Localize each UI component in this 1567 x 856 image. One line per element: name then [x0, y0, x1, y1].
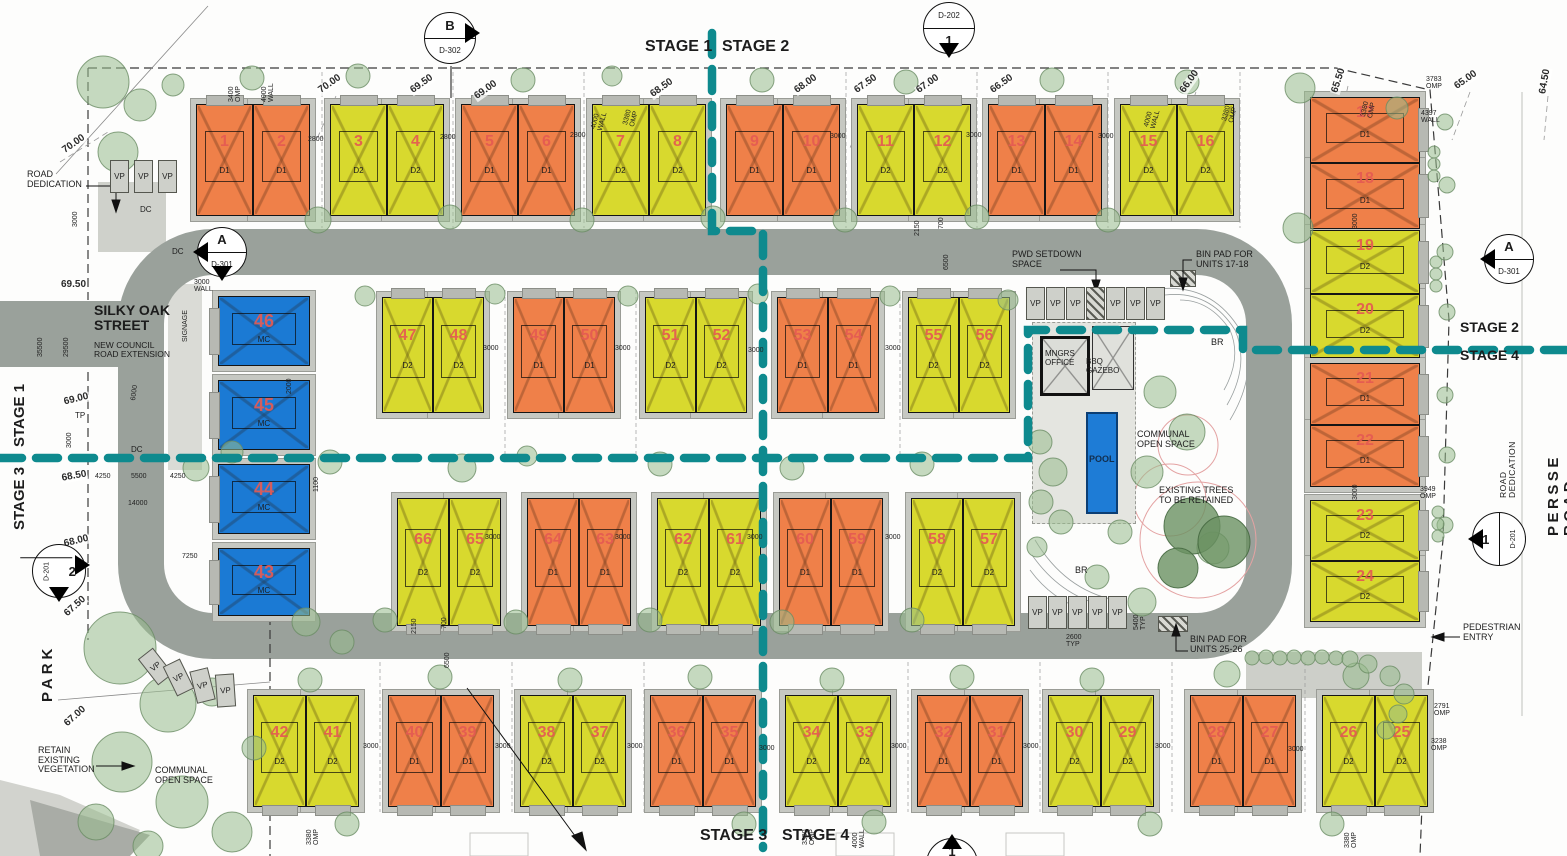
unit-3: 3D2 — [330, 104, 387, 216]
unit-type: D1 — [989, 166, 1044, 175]
unit-58: 58D2 — [911, 498, 963, 626]
stage3-west: STAGE 3 — [12, 467, 28, 530]
unit-30: 30D2 — [1048, 695, 1101, 807]
unit-number: 1 — [197, 133, 252, 151]
stage1-top: STAGE 1 — [645, 38, 712, 55]
unit-number: 8 — [650, 133, 705, 151]
dimensions-25: 4250 — [95, 473, 111, 480]
unit-type: MC — [219, 419, 309, 428]
unit-26: 26D2 — [1322, 695, 1375, 807]
unit-type: D1 — [565, 361, 614, 370]
marker-text: D-201 — [1486, 526, 1538, 552]
stage3-bottom: STAGE 3 — [700, 827, 767, 844]
unit-number: 42 — [254, 724, 305, 742]
unit-19: 19D2 — [1310, 230, 1420, 294]
unit-number: 15 — [1121, 133, 1176, 151]
dimensions-16: 3000 — [1352, 484, 1359, 500]
unit-29: 29D2 — [1101, 695, 1154, 807]
dimensions-15: 3000 — [1352, 213, 1359, 229]
marker-triangle — [49, 587, 69, 612]
unit-type: D1 — [704, 757, 755, 766]
unit-type: D2 — [1178, 166, 1233, 175]
unit-type: D1 — [514, 361, 563, 370]
unit-type: D1 — [1311, 394, 1419, 403]
unit-44: 44MC — [218, 464, 310, 534]
dimensions-34: 3000 — [483, 345, 499, 352]
unit-number: 56 — [960, 327, 1009, 345]
marker-triangle — [1458, 529, 1483, 549]
unit-type: D1 — [580, 568, 630, 577]
pedestrian-entry: PEDESTRIAN ENTRY — [1463, 623, 1521, 642]
unit-12: 12D2 — [914, 104, 971, 216]
stage1-west: STAGE 1 — [12, 384, 28, 447]
dimensions-24: 2000 — [286, 378, 293, 394]
vp-label: VP — [1050, 299, 1061, 308]
dimensions-4: 2800 — [570, 132, 586, 139]
unit-type: D1 — [727, 166, 782, 175]
unit-8: 8D2 — [649, 104, 706, 216]
dimensions-28: 14000 — [128, 500, 147, 507]
unit-number: 13 — [989, 133, 1044, 151]
unit-53: 53D1 — [777, 297, 828, 413]
section-marker-b-d302: BD-302 — [424, 12, 476, 64]
dimensions-19: 35500 — [37, 338, 44, 357]
dimensions-3: 2800 — [440, 134, 456, 141]
unit-39: 39D1 — [441, 695, 494, 807]
unit-46: 46MC — [218, 296, 310, 366]
dimensions-37: 3000 — [885, 345, 901, 352]
dimensions-45: 5400 TYP — [1133, 614, 1147, 630]
unit-type: D2 — [331, 166, 386, 175]
unit-54: 54D1 — [828, 297, 879, 413]
unit-type: D2 — [1323, 757, 1374, 766]
unit-type: D1 — [254, 166, 309, 175]
vp-space: VP — [1048, 596, 1067, 629]
vp-space: VP — [1026, 287, 1045, 320]
marker-triangle — [942, 824, 962, 849]
vp-label: VP — [114, 172, 125, 181]
unit-number: 24 — [1311, 568, 1419, 586]
unit-type: D1 — [442, 757, 493, 766]
vp-label: VP — [172, 671, 186, 684]
vp-label: VP — [1112, 608, 1123, 617]
vp-space: VP — [1108, 596, 1127, 629]
unit-59: 59D1 — [831, 498, 883, 626]
dimensions-46: 2600 TYP — [1066, 634, 1082, 648]
unit-type: D2 — [839, 757, 890, 766]
unit-type: D1 — [780, 568, 830, 577]
unit-10: 10D1 — [783, 104, 840, 216]
unit-type: D2 — [960, 361, 1009, 370]
unit-21: 21D1 — [1310, 363, 1420, 425]
unit-number: 55 — [909, 327, 958, 345]
unit-type: D2 — [1376, 757, 1427, 766]
unit-type: D2 — [915, 166, 970, 175]
unit-type: D2 — [450, 568, 500, 577]
unit-type: D1 — [784, 166, 839, 175]
pwd-parking-space — [1086, 287, 1105, 320]
unit-18: 18D1 — [1310, 163, 1420, 229]
dimensions-5: 3000 — [830, 133, 846, 140]
unit-type: D2 — [697, 361, 746, 370]
unit-type: D2 — [646, 361, 695, 370]
unit-49: 49D1 — [513, 297, 564, 413]
unit-65: 65D2 — [449, 498, 501, 626]
mngrs-office: MNGRS OFFICE — [1045, 350, 1075, 367]
vp-label: VP — [1072, 608, 1083, 617]
dimensions-17: 3949 OMP — [1420, 486, 1436, 500]
unit-type: D1 — [519, 166, 574, 175]
unit-51: 51D2 — [645, 297, 696, 413]
bin-pad-17-18-pad — [1170, 270, 1196, 287]
dimensions-35: 3000 — [615, 345, 631, 352]
unit-number: 39 — [442, 724, 493, 742]
vp-label: VP — [1030, 299, 1041, 308]
vp-space: VP — [1068, 596, 1087, 629]
stage2-east: STAGE 2 — [1460, 320, 1519, 335]
unit-type: D1 — [1311, 130, 1419, 139]
dc-2: DC — [172, 248, 184, 257]
unit-52: 52D2 — [696, 297, 747, 413]
pool: POOL — [1089, 455, 1115, 465]
unit-42: 42D2 — [253, 695, 306, 807]
vp-label: VP — [149, 660, 163, 674]
unit-number: 64 — [528, 531, 578, 549]
unit-number: 4 — [388, 133, 443, 151]
marker-triangle — [183, 242, 208, 262]
unit-number: 28 — [1191, 724, 1242, 742]
unit-number: 44 — [219, 479, 309, 500]
bbq-gazebo: BBQ GAZEBO — [1086, 358, 1119, 375]
unit-number: 7 — [593, 133, 648, 151]
vp-space: VP — [1066, 287, 1085, 320]
dimensions-21: 3000 — [66, 432, 73, 448]
unit-41: 41D2 — [306, 695, 359, 807]
unit-40: 40D1 — [388, 695, 441, 807]
unit-number: 46 — [219, 311, 309, 332]
unit-50: 50D1 — [564, 297, 615, 413]
vp-space: VP — [1046, 287, 1065, 320]
dimensions-41: 3000 — [485, 534, 501, 541]
vp-space: VP — [1028, 596, 1047, 629]
persse-road: PERSSE ROAD — [1546, 454, 1567, 536]
dc-3: DC — [131, 446, 143, 455]
unit-number: 66 — [398, 531, 448, 549]
unit-9: 9D1 — [726, 104, 783, 216]
unit-number: 36 — [651, 724, 702, 742]
unit-type: D2 — [1311, 592, 1419, 601]
unit-38: 38D2 — [520, 695, 573, 807]
unit-type: D1 — [1311, 456, 1419, 465]
dimensions-2: 2800 — [308, 136, 324, 143]
dc-1: DC — [140, 206, 152, 215]
unit-61: 61D2 — [709, 498, 761, 626]
unit-number: 6 — [519, 133, 574, 151]
dimensions-31: 2150 — [914, 220, 921, 236]
unit-4: 4D2 — [387, 104, 444, 216]
vp-label: VP — [1052, 608, 1063, 617]
unit-62: 62D2 — [657, 498, 709, 626]
unit-number: 32 — [918, 724, 969, 742]
communal-open-space-c: COMMUNAL OPEN SPACE — [1137, 430, 1195, 449]
section-marker-a-d301-east: AD-301 — [1484, 234, 1534, 284]
unit-type: D2 — [1311, 531, 1419, 540]
unit-type: D1 — [918, 757, 969, 766]
unit-type: MC — [219, 586, 309, 595]
unit-type: D1 — [778, 361, 827, 370]
unit-type: D2 — [398, 568, 448, 577]
vp-label: VP — [1130, 299, 1141, 308]
unit-25: 25D2 — [1375, 695, 1428, 807]
existing-trees-note: EXISTING TREES TO BE RETAINED — [1159, 486, 1233, 505]
marker-triangle — [1470, 249, 1495, 269]
retain-existing-vegetation: RETAIN EXISTING VEGETATION — [38, 746, 95, 775]
bin-pad-17-18: BIN PAD FOR UNITS 17-18 — [1196, 250, 1253, 269]
unit-number: 35 — [704, 724, 755, 742]
unit-type: D2 — [388, 166, 443, 175]
unit-type: D2 — [434, 361, 483, 370]
unit-48: 48D2 — [433, 297, 484, 413]
unit-number: 18 — [1311, 170, 1419, 188]
dimensions-60: 3380 OMP — [1344, 832, 1358, 848]
unit-type: D1 — [651, 757, 702, 766]
unit-type: D1 — [1046, 166, 1101, 175]
unit-22: 22D1 — [1310, 425, 1420, 487]
unit-type: D2 — [786, 757, 837, 766]
unit-number: 2 — [254, 133, 309, 151]
unit-5: 5D1 — [461, 104, 518, 216]
unit-type: D2 — [307, 757, 358, 766]
bin-pad-25-26: BIN PAD FOR UNITS 25-26 — [1190, 635, 1247, 654]
unit-type: D1 — [971, 757, 1022, 766]
dimensions-0: 3400 OMP — [228, 86, 242, 102]
unit-63: 63D1 — [579, 498, 631, 626]
dimensions-39: 700 — [441, 617, 448, 629]
vp-space: VP — [1106, 287, 1125, 320]
unit-number: 12 — [915, 133, 970, 151]
unit-23: 23D2 — [1310, 500, 1420, 561]
unit-number: 50 — [565, 327, 614, 345]
unit-55: 55D2 — [908, 297, 959, 413]
unit-number: 62 — [658, 531, 708, 549]
unit-type: D2 — [1121, 166, 1176, 175]
tp: TP — [75, 412, 85, 421]
unit-number: 21 — [1311, 370, 1419, 388]
vp-space: VP — [215, 673, 236, 707]
unit-number: 30 — [1049, 724, 1100, 742]
dimensions-52: 3000 — [1023, 743, 1039, 750]
section-marker-1-d201: 1D-201 — [1472, 512, 1526, 566]
dimensions-59: 3238 OMP — [1431, 738, 1447, 752]
dimensions-33: 6500 — [943, 254, 950, 270]
unit-number: 25 — [1376, 724, 1427, 742]
communal-open-space-sw: COMMUNAL OPEN SPACE — [155, 766, 213, 785]
unit-37: 37D2 — [573, 695, 626, 807]
unit-number: 31 — [971, 724, 1022, 742]
unit-number: 41 — [307, 724, 358, 742]
unit-type: D2 — [909, 361, 958, 370]
unit-number: 37 — [574, 724, 625, 742]
dimensions-47: 3000 — [363, 743, 379, 750]
unit-36: 36D1 — [650, 695, 703, 807]
unit-47: 47D2 — [382, 297, 433, 413]
new-council-road-extension: NEW COUNCIL ROAD EXTENSION — [94, 341, 170, 359]
br-south: BR — [1075, 566, 1088, 576]
road-dedication-west: ROAD DEDICATION — [27, 170, 82, 189]
unit-number: 48 — [434, 327, 483, 345]
unit-32: 32D1 — [917, 695, 970, 807]
vp-label: VP — [1032, 608, 1043, 617]
marker-triangle — [465, 23, 490, 43]
unit-45: 45MC — [218, 380, 310, 450]
site-plan-canvas: 1D12D13D24D25D16D17D28D29D110D111D212D21… — [0, 0, 1567, 856]
unit-type: D2 — [593, 166, 648, 175]
unit-number: 53 — [778, 327, 827, 345]
unit-1: 1D1 — [196, 104, 253, 216]
dimensions-6: 3000 — [966, 132, 982, 139]
dimensions-55: 3380 OMP — [306, 829, 320, 845]
unit-type: D2 — [658, 568, 708, 577]
marker-text: D-202 — [924, 3, 974, 29]
park: PARK — [40, 645, 56, 702]
br-north: BR — [1211, 338, 1224, 348]
dimensions-7: 3000 — [1098, 133, 1114, 140]
dimensions-38: 2150 — [411, 618, 418, 634]
unit-number: 51 — [646, 327, 695, 345]
unit-number: 38 — [521, 724, 572, 742]
unit-13: 13D1 — [988, 104, 1045, 216]
vp-space: VP — [1146, 287, 1165, 320]
unit-56: 56D2 — [959, 297, 1010, 413]
road-dedication-east: ROAD DEDICATION — [1499, 430, 1517, 498]
marker-text: D-201 — [20, 558, 72, 585]
unit-number: 54 — [829, 327, 878, 345]
section-marker-bottom-partial: 1 — [926, 838, 978, 856]
stage4-east: STAGE 4 — [1460, 348, 1519, 363]
dimensions-18: 3000 — [72, 211, 79, 227]
bin-pad-25-26-pad — [1158, 616, 1188, 632]
unit-24: 24D2 — [1310, 561, 1420, 622]
unit-number: 29 — [1102, 724, 1153, 742]
unit-35: 35D1 — [703, 695, 756, 807]
unit-number: 9 — [727, 133, 782, 151]
unit-type: D2 — [912, 568, 962, 577]
vp-space: VP — [134, 160, 153, 193]
contours-13: 69.50 — [60, 280, 87, 290]
unit-33: 33D2 — [838, 695, 891, 807]
unit-type: D1 — [528, 568, 578, 577]
vp-label: VP — [1092, 608, 1103, 617]
unit-64: 64D1 — [527, 498, 579, 626]
dimensions-1: 4000 WALL — [261, 83, 275, 102]
unit-number: 19 — [1311, 237, 1419, 255]
unit-number: 27 — [1244, 724, 1295, 742]
dimensions-54: 3000 — [1288, 746, 1304, 753]
unit-6: 6D1 — [518, 104, 575, 216]
unit-number: 23 — [1311, 507, 1419, 525]
dimensions-27: 4250 — [170, 473, 186, 480]
dimensions-44: 3000 — [885, 534, 901, 541]
unit-type: D1 — [1311, 196, 1419, 205]
unit-type: D2 — [650, 166, 705, 175]
unit-66: 66D2 — [397, 498, 449, 626]
unit-number: 22 — [1311, 432, 1419, 450]
unit-number: 33 — [839, 724, 890, 742]
unit-31: 31D1 — [970, 695, 1023, 807]
unit-number: 26 — [1323, 724, 1374, 742]
unit-14: 14D1 — [1045, 104, 1102, 216]
unit-type: D2 — [521, 757, 572, 766]
unit-number: 45 — [219, 395, 309, 416]
unit-60: 60D1 — [779, 498, 831, 626]
unit-type: D2 — [858, 166, 913, 175]
unit-type: D2 — [254, 757, 305, 766]
unit-number: 49 — [514, 327, 563, 345]
unit-type: D2 — [574, 757, 625, 766]
unit-type: D1 — [1191, 757, 1242, 766]
unit-type: D1 — [832, 568, 882, 577]
dimensions-50: 3000 — [759, 745, 775, 752]
unit-type: D2 — [1311, 262, 1419, 271]
dimensions-53: 3000 — [1155, 743, 1171, 750]
unit-number: 43 — [219, 562, 309, 583]
vp-space: VP — [1126, 287, 1145, 320]
unit-number: 14 — [1046, 133, 1101, 151]
unit-number: 58 — [912, 531, 962, 549]
vp-label: VP — [196, 680, 209, 691]
dimensions-26: 5500 — [131, 473, 147, 480]
unit-number: 47 — [383, 327, 432, 345]
unit-type: D2 — [1049, 757, 1100, 766]
signage: SIGNAGE — [182, 310, 190, 342]
dimensions-48: 3000 — [495, 743, 511, 750]
marker-triangle — [212, 266, 232, 291]
dimensions-29: 7250 — [182, 553, 198, 560]
unit-type: D2 — [1311, 326, 1419, 335]
unit-number: 59 — [832, 531, 882, 549]
dimensions-36: 3000 — [748, 347, 764, 354]
unit-20: 20D2 — [1310, 294, 1420, 358]
section-marker-1-d202: D-2021 — [923, 2, 975, 54]
unit-type: D1 — [462, 166, 517, 175]
marker-triangle — [75, 555, 100, 575]
unit-2: 2D1 — [253, 104, 310, 216]
vp-space: VP — [110, 160, 129, 193]
section-marker-a-d301-west: AD-301 — [197, 227, 247, 277]
silky-oak-street: SILKY OAK STREET — [94, 303, 170, 333]
unit-number: 57 — [964, 531, 1014, 549]
dimensions-43: 3000 — [747, 534, 763, 541]
unit-number: 20 — [1311, 301, 1419, 319]
unit-type: D2 — [383, 361, 432, 370]
section-marker-2-d201: D-2012 — [32, 544, 86, 598]
dimensions-13: 3783 OMP — [1426, 76, 1442, 90]
marker-triangle — [939, 43, 959, 68]
stage2-top: STAGE 2 — [722, 38, 789, 55]
dimensions-14: 4397 WALL — [1421, 110, 1440, 124]
dimensions-40: 6500 — [444, 652, 451, 668]
vp-space: VP — [1088, 596, 1107, 629]
unit-number: 34 — [786, 724, 837, 742]
pwd-setdown-space: PWD SETDOWN SPACE — [1012, 250, 1082, 269]
unit-type: D1 — [1244, 757, 1295, 766]
unit-11: 11D2 — [857, 104, 914, 216]
dimensions-20: 29500 — [63, 338, 70, 357]
dimensions-56: 3380 OMP — [802, 829, 816, 845]
unit-type: D2 — [964, 568, 1014, 577]
vp-label: VP — [220, 686, 231, 696]
unit-number: 11 — [858, 133, 913, 151]
